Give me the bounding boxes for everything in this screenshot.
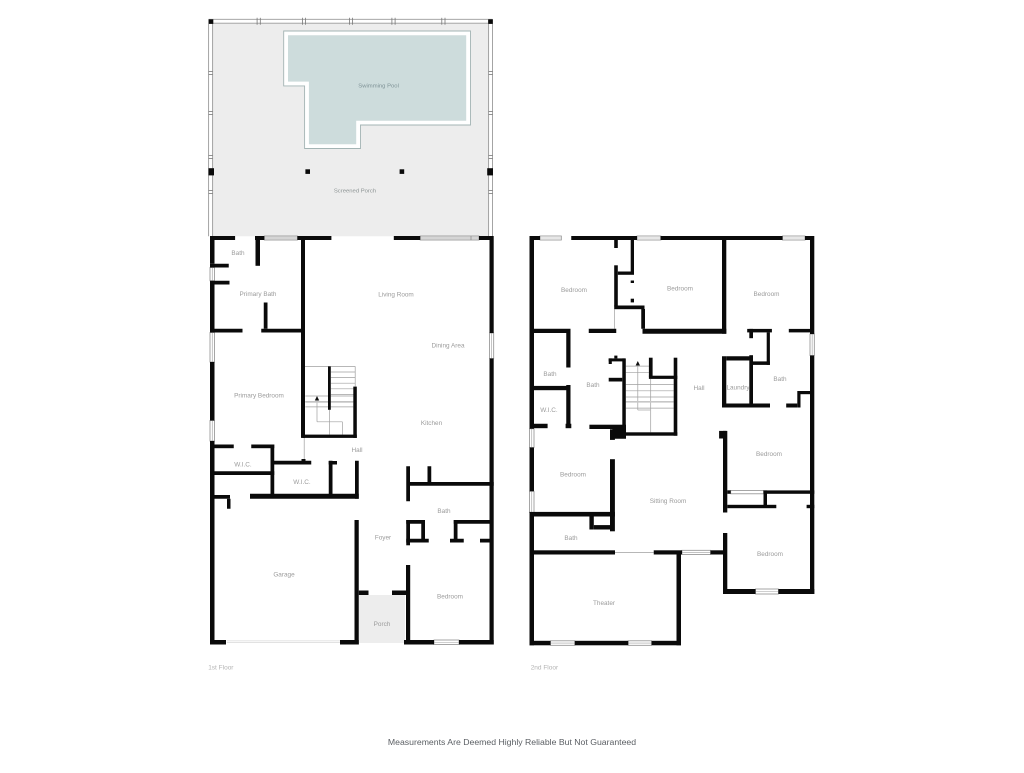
svg-text:Swimming Pool: Swimming Pool <box>358 83 399 89</box>
svg-text:Bath: Bath <box>586 382 600 389</box>
svg-text:W.I.C.: W.I.C. <box>293 479 311 486</box>
svg-text:Bath: Bath <box>231 250 245 257</box>
svg-text:Hall: Hall <box>351 447 362 454</box>
svg-text:Laundry: Laundry <box>726 385 750 392</box>
svg-text:Sitting Room: Sitting Room <box>650 498 687 505</box>
svg-text:Bedroom: Bedroom <box>437 594 463 601</box>
svg-text:Screened Porch: Screened Porch <box>334 189 376 195</box>
svg-text:W.I.C.: W.I.C. <box>540 407 558 414</box>
svg-text:Primary Bedroom: Primary Bedroom <box>234 393 284 400</box>
svg-text:Hall: Hall <box>693 385 704 392</box>
svg-text:Porch: Porch <box>374 621 391 628</box>
svg-text:Foyer: Foyer <box>375 535 392 542</box>
svg-text:Garage: Garage <box>273 572 295 579</box>
svg-text:2nd Floor: 2nd Floor <box>531 665 559 672</box>
svg-text:Kitchen: Kitchen <box>421 420 443 427</box>
svg-text:Bedroom: Bedroom <box>561 287 587 294</box>
svg-text:Bedroom: Bedroom <box>560 472 586 479</box>
svg-text:Theater: Theater <box>593 600 616 607</box>
svg-text:Primary Bath: Primary Bath <box>240 291 277 298</box>
svg-text:1st Floor: 1st Floor <box>208 665 234 672</box>
svg-text:W.I.C.: W.I.C. <box>234 462 252 469</box>
svg-text:Bedroom: Bedroom <box>754 291 780 298</box>
svg-text:Bedroom: Bedroom <box>667 286 693 293</box>
svg-text:Bath: Bath <box>543 371 557 378</box>
svg-text:Measurements Are Deemed Highly: Measurements Are Deemed Highly Reliable … <box>388 737 636 747</box>
svg-text:Dining Area: Dining Area <box>431 343 464 350</box>
svg-text:Living Room: Living Room <box>378 292 414 299</box>
svg-text:Bath: Bath <box>437 508 451 515</box>
svg-text:Bath: Bath <box>564 535 578 542</box>
svg-text:Bedroom: Bedroom <box>757 551 783 558</box>
svg-text:Bedroom: Bedroom <box>756 451 782 458</box>
svg-text:Bath: Bath <box>773 376 787 383</box>
